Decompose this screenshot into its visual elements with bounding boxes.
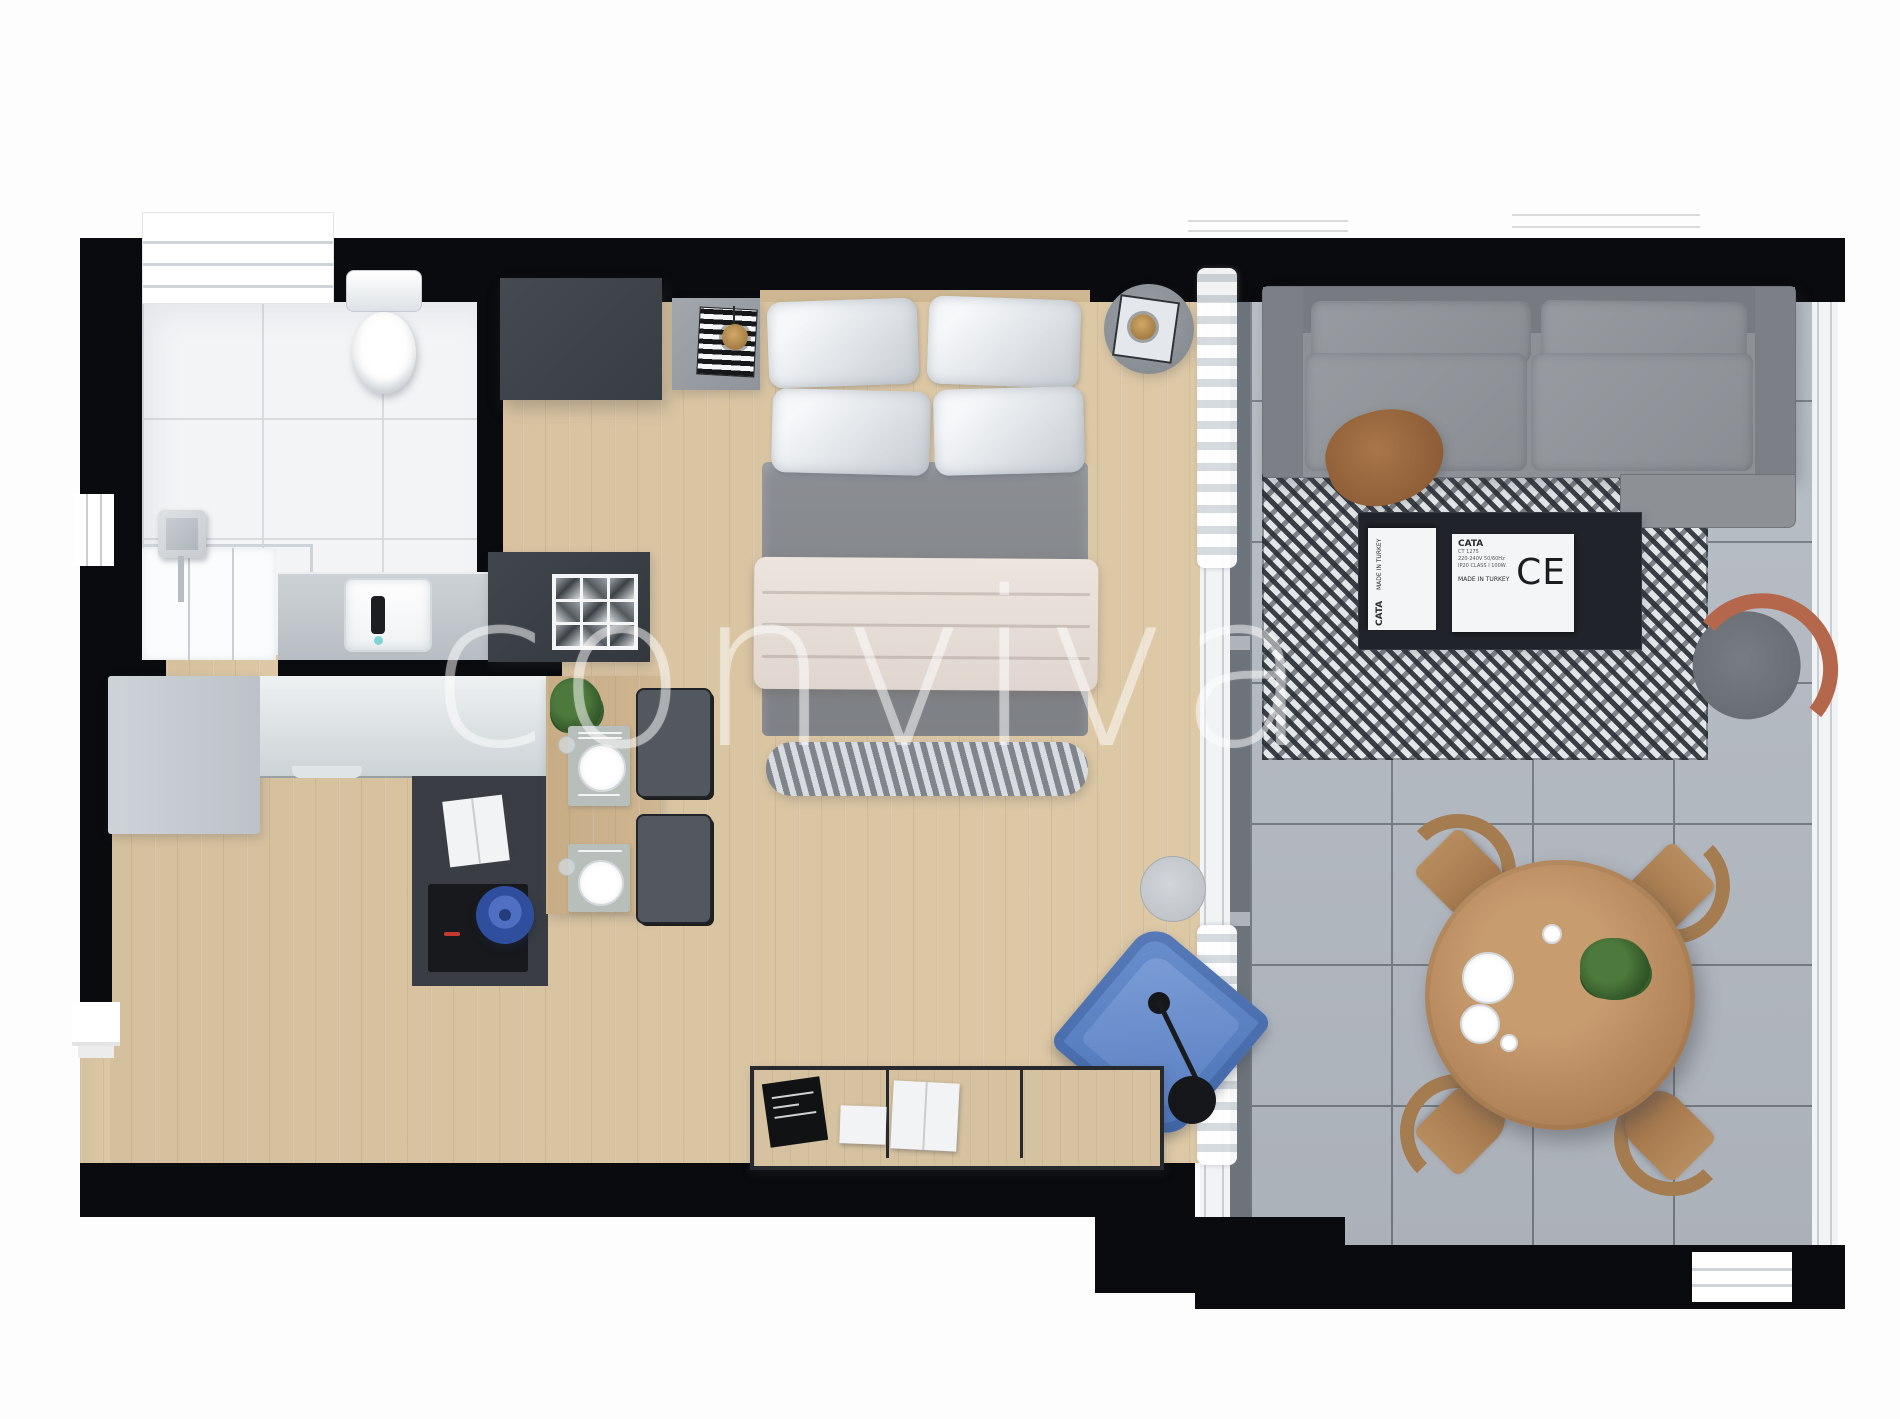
- art-print-grid: [552, 574, 638, 650]
- cookbook-open: [442, 795, 510, 868]
- shower-door-line: [188, 548, 190, 660]
- sofa-armrest-right: [1755, 287, 1795, 477]
- tag-spec: IP20 CLASS I 100W: [1458, 563, 1510, 570]
- bar-chair: [636, 688, 712, 798]
- tag-origin: MADE IN TURKEY: [1458, 576, 1510, 584]
- dining-plate: [1460, 1004, 1500, 1044]
- partition-door-break: [1230, 636, 1250, 650]
- sofa-seat-cushion: [1531, 353, 1753, 471]
- bathroom-sink: [344, 578, 432, 652]
- toilet-bowl: [352, 312, 416, 394]
- wardrobe: [500, 278, 662, 400]
- fridge-tall-unit: [108, 676, 260, 834]
- vent-tick: [1188, 230, 1348, 232]
- white-magazine: [839, 1105, 886, 1145]
- window-bathroom: [142, 212, 334, 304]
- window-left: [74, 494, 114, 566]
- sink-drain: [374, 636, 383, 645]
- art-print-cell: [556, 602, 580, 623]
- art-print-cell: [583, 602, 607, 623]
- art-print-cell: [610, 578, 634, 599]
- vent-tick: [1188, 220, 1348, 222]
- product-tag-side: CATA MADE IN TURKEY: [1368, 528, 1436, 630]
- art-print-cell: [583, 625, 607, 646]
- partition-door-break: [1230, 912, 1250, 926]
- facade-glass-wall: [1812, 268, 1838, 1248]
- table-plant: [1580, 938, 1650, 1000]
- blanket-fold: [762, 623, 1090, 628]
- shower-panel: [142, 548, 276, 660]
- art-print-cell: [583, 578, 607, 599]
- open-book: [890, 1080, 959, 1151]
- shower-head: [158, 510, 206, 558]
- plate: [578, 860, 624, 906]
- console-divider: [1020, 1070, 1023, 1158]
- product-tag-ce: CATA CT 1275 220-240V 50/60Hz IP20 CLASS…: [1452, 534, 1574, 632]
- facade-glass-line: [1830, 268, 1832, 1248]
- shower-arm: [178, 556, 184, 602]
- tag-origin: MADE IN TURKEY: [1376, 538, 1383, 589]
- vent-tick: [1512, 226, 1700, 228]
- tag-brand: CATA: [1458, 539, 1510, 549]
- cutlery: [578, 737, 622, 739]
- bar-chair: [636, 814, 712, 924]
- art-print-cell: [556, 578, 580, 599]
- sofa-armrest-left: [1263, 287, 1303, 477]
- cutlery: [578, 794, 620, 796]
- open-book-spine: [922, 1082, 928, 1150]
- knit-bench: [766, 742, 1088, 796]
- dining-cup: [1542, 924, 1562, 944]
- bed-pillow: [933, 386, 1085, 476]
- facade-glass-line: [1817, 268, 1819, 1248]
- drinking-glass: [558, 736, 576, 754]
- dining-plate: [1462, 952, 1514, 1004]
- shower-door-line: [232, 548, 234, 660]
- art-print-cell: [610, 625, 634, 646]
- cutlery: [578, 850, 622, 852]
- cutlery: [578, 732, 622, 734]
- black-book: [762, 1076, 828, 1147]
- blanket-fold: [762, 655, 1090, 660]
- pendant-lamp-left: [722, 324, 748, 350]
- wall-bottom-left: [80, 1163, 1195, 1217]
- wood-floor-entry-patch: [80, 1040, 110, 1163]
- plate: [578, 744, 626, 792]
- console-divider: [886, 1070, 889, 1158]
- art-print-cell: [610, 602, 634, 623]
- terrace-door-line: [1692, 1268, 1792, 1271]
- counter-handle-notch: [292, 766, 362, 778]
- bed-blanket: [754, 557, 1099, 691]
- toilet-tank: [346, 270, 422, 312]
- sink-faucet: [371, 596, 385, 634]
- lamp-right: [1130, 314, 1156, 340]
- blue-dutch-oven: [476, 886, 534, 944]
- curtain-upper: [1197, 268, 1237, 568]
- round-side-table: [1140, 856, 1206, 922]
- wall-left-upper: [80, 238, 142, 710]
- blanket-fold: [762, 591, 1090, 596]
- window-sill-line: [143, 285, 333, 288]
- floor-lamp-shade: [1168, 1076, 1216, 1124]
- window-sill-line: [143, 241, 333, 244]
- drinking-glass: [558, 858, 576, 876]
- cooktop-controls: [444, 932, 460, 936]
- kitchen-counter: [260, 676, 550, 778]
- dining-table: [1425, 860, 1695, 1130]
- pot-lid-knob: [499, 909, 511, 921]
- bed-pillow: [767, 297, 920, 388]
- terrace-door-gap: [1692, 1252, 1792, 1302]
- window-sill-line: [143, 263, 333, 266]
- terrace-door-line: [1692, 1284, 1792, 1287]
- entry-door-threshold: [72, 1002, 120, 1046]
- tag-brand: CATA: [1375, 601, 1385, 626]
- cookbook-spine: [471, 798, 481, 864]
- vent-tick: [1512, 214, 1700, 216]
- tag-model: CT 1275: [1458, 549, 1510, 556]
- bed-pillow: [927, 295, 1082, 388]
- floor-plan-render: CATA MADE IN TURKEY CATA CT 1275 220-240…: [0, 0, 1900, 1419]
- window-left-line: [86, 494, 88, 566]
- bed-pillow: [771, 388, 931, 476]
- tag-voltage: 220-240V 50/60Hz: [1458, 556, 1510, 563]
- sofa-chaise: [1620, 474, 1796, 528]
- window-left-line: [100, 494, 102, 566]
- dining-small-dish: [1500, 1034, 1518, 1052]
- ce-mark: CE: [1516, 552, 1566, 593]
- art-print-cell: [556, 625, 580, 646]
- entry-door-step: [78, 1046, 114, 1058]
